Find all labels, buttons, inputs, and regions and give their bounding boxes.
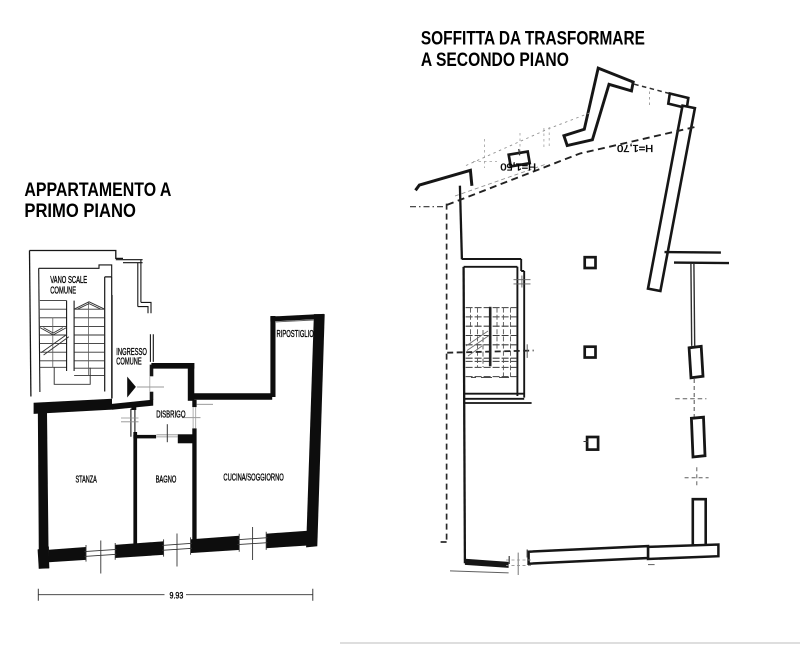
svg-text:CUCINA/SOGGIORNO: CUCINA/SOGGIORNO	[223, 473, 284, 484]
svg-text:RIPOSTIGLIO: RIPOSTIGLIO	[277, 329, 314, 340]
svg-text:H=1,50: H=1,50	[500, 160, 536, 171]
svg-text:COMUNE: COMUNE	[116, 357, 142, 368]
svg-text:SOFFITTA DA TRASFORMARE: SOFFITTA DA TRASFORMARE	[421, 27, 645, 49]
svg-text:BAGNO: BAGNO	[156, 475, 177, 486]
svg-text:APPARTAMENTO A: APPARTAMENTO A	[24, 179, 171, 201]
svg-text:STANZA: STANZA	[76, 475, 98, 486]
svg-text:A SECONDO PIANO: A SECONDO PIANO	[421, 49, 569, 71]
svg-text:H=1,70: H=1,70	[617, 142, 654, 153]
svg-text:COMUNE: COMUNE	[50, 286, 76, 297]
svg-text:DISBRIGO: DISBRIGO	[156, 410, 185, 421]
svg-text:PRIMO PIANO: PRIMO PIANO	[24, 200, 135, 222]
svg-text:9.93: 9.93	[170, 591, 184, 601]
